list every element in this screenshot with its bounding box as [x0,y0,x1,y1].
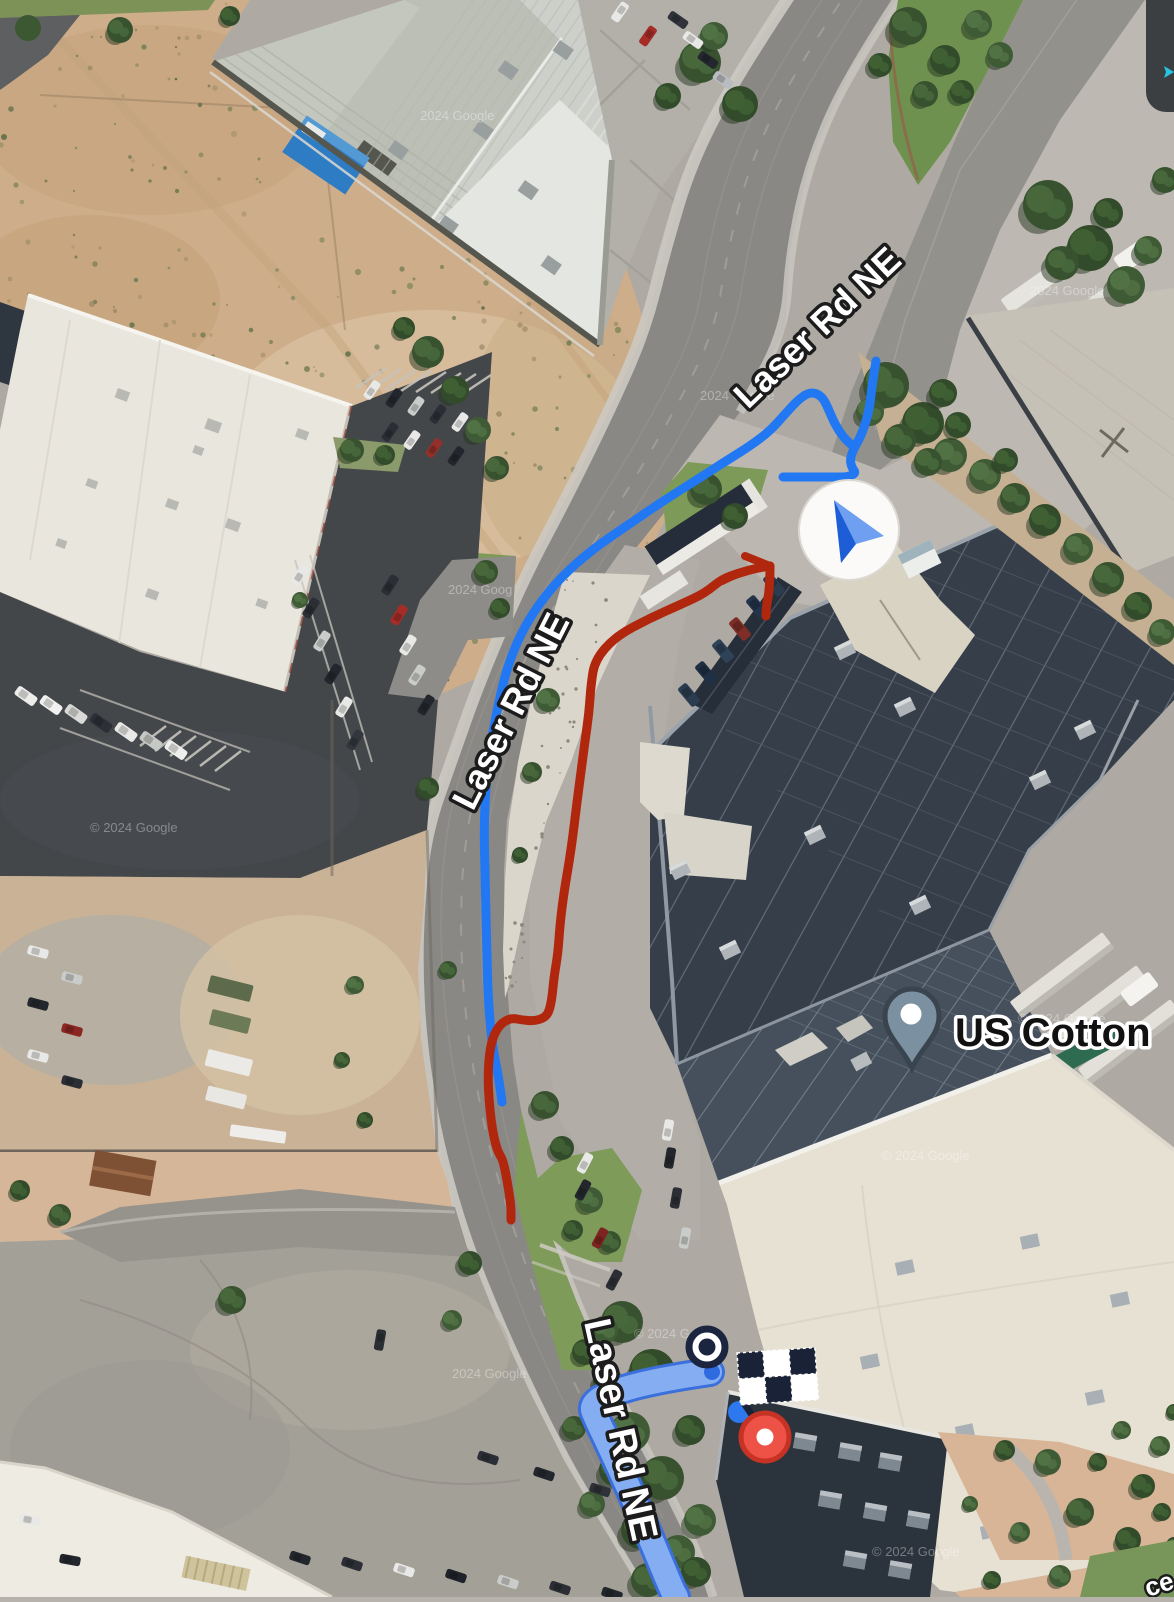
svg-text:© 2024 Google: © 2024 Google [882,1148,970,1163]
svg-text:2024 Google: 2024 Google [452,1366,526,1381]
svg-text:2024 Google: 2024 Google [420,108,494,123]
svg-text:2024 Google: 2024 Google [1030,283,1104,298]
svg-text:2024 Goog: 2024 Goog [448,582,512,597]
svg-text:© 2024 Google: © 2024 Google [90,820,178,835]
svg-text:© 2024 Google: © 2024 Google [872,1544,960,1559]
svg-text:US Cotton: US Cotton [955,1011,1151,1055]
